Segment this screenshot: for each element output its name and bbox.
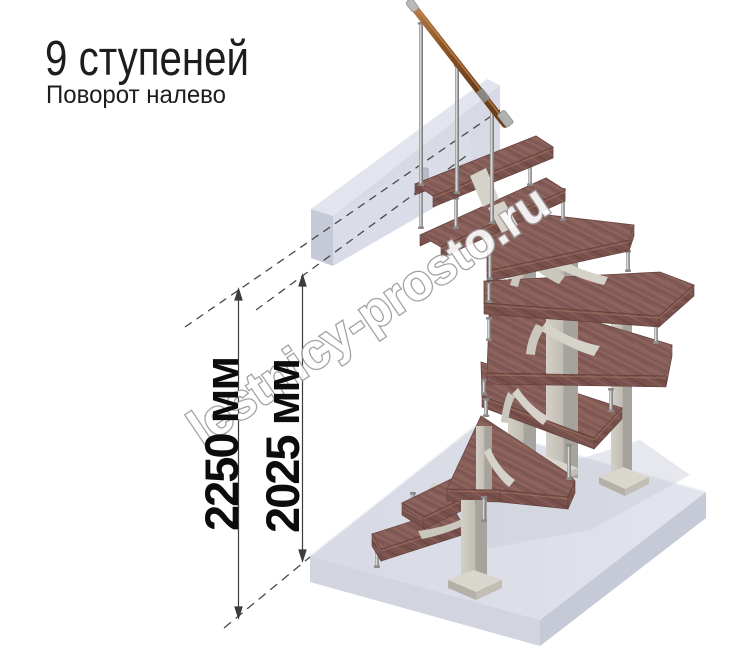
- svg-text:9 ступеней: 9 ступеней: [45, 32, 249, 86]
- svg-text:Поворот налево: Поворот налево: [46, 81, 226, 109]
- svg-text:2025 мм: 2025 мм: [256, 360, 309, 533]
- svg-text:2250 мм: 2250 мм: [195, 358, 248, 531]
